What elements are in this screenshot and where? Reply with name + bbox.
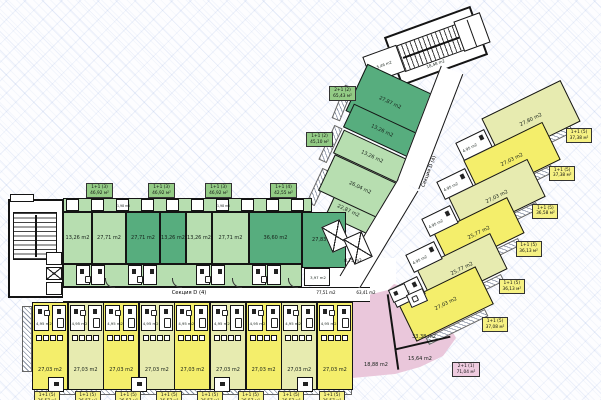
unit-area: 36,13 м²: [519, 249, 539, 255]
bathroom-cell: 4,95 m2: [319, 305, 334, 331]
unit-tag: 1+1 (3)46,92 м²: [205, 183, 232, 198]
bathroom-cell: 4,95 m2: [105, 305, 120, 331]
closet-cell: [266, 199, 279, 211]
unit-type: 1+1 (5): [200, 393, 220, 399]
room-area-label: 5,46 m2: [376, 59, 393, 69]
balcony-box: [48, 377, 64, 392]
unit-tag: 1+1 (5)36,57 м²: [75, 391, 101, 400]
room-area-label: 13,26 m2: [360, 149, 384, 165]
bathroom-cell: 4,95 m2: [248, 305, 263, 331]
bath-area-label: 4,95 m2: [72, 321, 88, 326]
bathroom-cell: [196, 265, 210, 285]
room-area-label: 13,26 m2: [161, 235, 185, 241]
green-room: 27,71 m2: [92, 212, 126, 264]
bathroom-cell: 4,95 m2: [212, 305, 227, 331]
unit-tag: 1+1 (5)36,13 м²: [499, 279, 525, 294]
wardrobe-row: [214, 335, 241, 341]
closet-cell: [191, 199, 204, 211]
duct-cell: [46, 252, 62, 265]
unit-type: 1+1 (5): [78, 393, 98, 399]
room-area-label: 27,03 m2: [247, 367, 281, 373]
bathroom-cell: 4,95 m2: [141, 305, 156, 331]
bath-area-label: 4,95 m2: [411, 254, 427, 265]
unit-type: 1+1 (3): [89, 185, 110, 191]
balcony-strip-left: [22, 306, 32, 372]
yellow-unit: 4,95 m227,03 m2: [246, 302, 282, 390]
corridor-area-label: 63,41 m2: [352, 290, 380, 295]
wardrobe-row: [250, 335, 277, 341]
yellow-unit: 4,95 m227,03 m2: [174, 302, 210, 390]
unit-type: 1+1 (5): [485, 319, 505, 325]
unit-type: 1+1 (5): [281, 393, 301, 399]
elevator-small-icon: [46, 267, 62, 280]
yellow-unit: 4,95 m227,03 m2: [68, 302, 104, 390]
green-room: 27,71 m2: [212, 212, 249, 264]
unit-type: 1+1 (5): [569, 130, 589, 136]
unit-type: 1+1 (5): [241, 393, 261, 399]
closet-cell: [166, 199, 179, 211]
wardrobe-row: [143, 335, 170, 341]
unit-type: 1+1 (5): [159, 393, 179, 399]
bath-area-label: 4,95 m2: [143, 321, 159, 326]
room-area-label: 26,04 m2: [348, 180, 372, 196]
unit-type: 1+1 (3): [208, 185, 229, 191]
closet-cell: [241, 199, 254, 211]
unit-type: 1+1 (4): [273, 185, 294, 191]
bath-area-label: 3,97 m2: [305, 275, 331, 280]
unit-tag: 1+1 (5)36,57 м²: [34, 391, 60, 400]
room-area-label: 27,71 m2: [131, 235, 155, 241]
unit-type: 2+1 (2): [332, 88, 353, 94]
wardrobe-row: [107, 335, 134, 341]
room-area-label: 27,71 m2: [97, 235, 121, 241]
room-area-label: 18,88 m2: [356, 362, 396, 368]
green-room: 36,60 m2: [249, 212, 302, 264]
room-area-label: 27,03 m2: [104, 367, 138, 373]
bath-area-label: 4,95 m2: [36, 321, 52, 326]
unit-area: 65,43 м²: [332, 94, 353, 100]
bath-area-label: 4,95 m2: [250, 321, 266, 326]
bath-area-label: 4,95 m2: [178, 321, 194, 326]
bathroom-cell: 4,95 m2: [283, 305, 298, 331]
closet-cell: 1,98 m2: [216, 199, 229, 211]
unit-tag: 1+1 (3)46,92 м²: [86, 183, 113, 198]
bathroom-cell: [337, 305, 351, 331]
unit-type: 1+1 (5): [118, 393, 138, 399]
green-room: 27,71 m2: [126, 212, 160, 264]
closet-cell: [141, 199, 154, 211]
balcony-box: [214, 377, 230, 392]
unit-tag: 1+1 (5)36,57 м²: [278, 391, 304, 400]
room-area-label: 33,38 m2: [404, 334, 444, 340]
unit-type: 1+1 (5): [322, 393, 342, 399]
unit-area: 45,10 м²: [309, 140, 330, 146]
bath-area-label: 4,95 m2: [285, 321, 301, 326]
bath-area-label: 4,95 m2: [461, 142, 477, 153]
wardrobe-row: [36, 335, 63, 341]
green-room: 13,26 m2: [160, 212, 186, 264]
room-area-label: 27,03 m2: [434, 296, 458, 312]
room-area-label: 27,03 m2: [175, 367, 209, 373]
bathroom-cell: [301, 305, 315, 331]
yellow-unit: 4,95 m227,03 m2: [317, 302, 353, 390]
unit-tag: 2+1 (2)65,43 м²: [329, 86, 356, 101]
bathroom-cell: 4,95 m2: [34, 305, 49, 331]
unit-area: 37,08 м²: [485, 325, 505, 331]
unit-tag: 1+1 (5)36,57 м²: [156, 391, 182, 400]
bathroom-cell: [211, 265, 225, 285]
unit-area: 46,92 м²: [89, 191, 110, 197]
bathroom-cell: [159, 305, 173, 331]
unit-tag: 1+1 (5)36,57 м²: [197, 391, 223, 400]
unit-type: 2+1 (1): [455, 364, 477, 370]
unit-tag: 1+1 (5)36,57 м²: [238, 391, 264, 400]
duct-cell: [46, 282, 62, 295]
green-room: 13,26 m2: [186, 212, 212, 264]
corridor-area-label: 77,51 m2: [312, 290, 340, 295]
bathroom-cell: [76, 265, 90, 285]
unit-type: 1+1 (3): [151, 185, 172, 191]
section-label-wing: Секция D (4): [416, 144, 442, 198]
unit-area: 71,04 м²: [455, 370, 477, 376]
bathroom-cell: [194, 305, 208, 331]
wardrobe-row: [178, 335, 205, 341]
room-area-label: 27,03 m2: [69, 367, 103, 373]
corner-bathroom-cell: 3,97 m2: [304, 268, 330, 286]
room-area-label: 27,03 m2: [211, 367, 245, 373]
unit-area: 42,55 м²: [273, 191, 294, 197]
room-area-label: 15,64 m2: [400, 356, 440, 362]
room-area-label: 13,26 m2: [187, 235, 211, 241]
closet-cell: [66, 199, 79, 211]
room-area-label: 27,87 m2: [378, 95, 402, 111]
room-area-label: 13,26 m2: [370, 123, 394, 139]
unit-type: 1+1 (5): [37, 393, 57, 399]
room-area-label: 27,03 m2: [282, 367, 316, 373]
room-area-label: 27,03 m2: [33, 367, 67, 373]
unit-tag: 1+1 (5)36,57 м²: [115, 391, 141, 400]
closet-cell: 1,98 m2: [116, 199, 129, 211]
unit-tag: 1+1 (5)36,58 м²: [532, 204, 558, 219]
wardrobe-row: [321, 335, 348, 341]
bath-area-label: 4,95 m2: [442, 181, 458, 192]
bathroom-cell: [52, 305, 66, 331]
balcony-box: [297, 377, 313, 392]
bathroom-cell: [143, 265, 157, 285]
unit-area: 37,38 м²: [569, 136, 589, 142]
unit-tag: 1+1 (5)36,13 м²: [516, 241, 542, 256]
section-label: Секция D (4): [158, 290, 220, 296]
unit-tag: 2+1 (1)71,04 м²: [452, 362, 480, 377]
stair-core-top-protrusion: [10, 194, 34, 202]
floor-plan: 18,48 m2 4,45 m2 1,98 m2 1,98 m2 13,26 m…: [0, 0, 601, 400]
bathroom-cell: 4,95 m2: [176, 305, 191, 331]
room-area-label: 13,26 m2: [66, 235, 90, 241]
bath-area-label: 4,95 m2: [107, 321, 123, 326]
unit-area: 46,92 м²: [208, 191, 229, 197]
unit-area: 36,13 м²: [502, 287, 522, 293]
closet-label: 1,98 m2: [217, 204, 230, 208]
bathroom-cell: 4,95 m2: [70, 305, 85, 331]
room-area-label: 36,60 m2: [264, 235, 288, 241]
room-area-label: 27,03 m2: [140, 367, 174, 373]
unit-area: 36,58 м²: [535, 211, 555, 217]
room-area-label: 27,71 m2: [219, 235, 243, 241]
wardrobe-row: [72, 335, 99, 341]
bathroom-cell: [252, 265, 266, 285]
closet-cell: [91, 199, 104, 211]
lobby-area-label: 8,75 m2: [338, 258, 368, 263]
unit-tag: 1+1 (5)37,08 м²: [482, 317, 508, 332]
bathroom-cell: [267, 265, 281, 285]
unit-tag: 1+1 (5)37,38 м²: [549, 166, 575, 181]
wardrobe-row: [285, 335, 312, 341]
closet-cell: [291, 199, 304, 211]
green-room: 13,26 m2: [63, 212, 92, 264]
unit-tag: 1+1 (2)45,10 м²: [306, 132, 333, 147]
balcony-box: [131, 377, 147, 392]
bath-area-label: 4,95 m2: [427, 218, 443, 229]
bathroom-cell: [88, 305, 102, 331]
unit-area: 46,92 м²: [151, 191, 172, 197]
unit-area: 37,38 м²: [552, 173, 572, 179]
bath-area-label: 4,95 m2: [214, 321, 230, 326]
unit-type: 1+1 (5): [502, 281, 522, 287]
bathroom-cell: [230, 305, 244, 331]
unit-type: 1+1 (2): [309, 134, 330, 140]
unit-tag: 1+1 (3)46,92 м²: [148, 183, 175, 198]
room-area-label: 27,03 m2: [318, 367, 352, 373]
closet-label: 1,98 m2: [117, 204, 130, 208]
unit-tag: 1+1 (4)42,55 м²: [270, 183, 297, 198]
bathroom-cell: [123, 305, 137, 331]
bath-area-label: 4,95 m2: [321, 321, 337, 326]
bathroom-cell: [91, 265, 105, 285]
unit-tag: 1+1 (5)37,38 м²: [566, 128, 592, 143]
bathroom-cell: [128, 265, 142, 285]
bathroom-cell: [266, 305, 280, 331]
unit-tag: 1+1 (5)36,57 м²: [319, 391, 345, 400]
